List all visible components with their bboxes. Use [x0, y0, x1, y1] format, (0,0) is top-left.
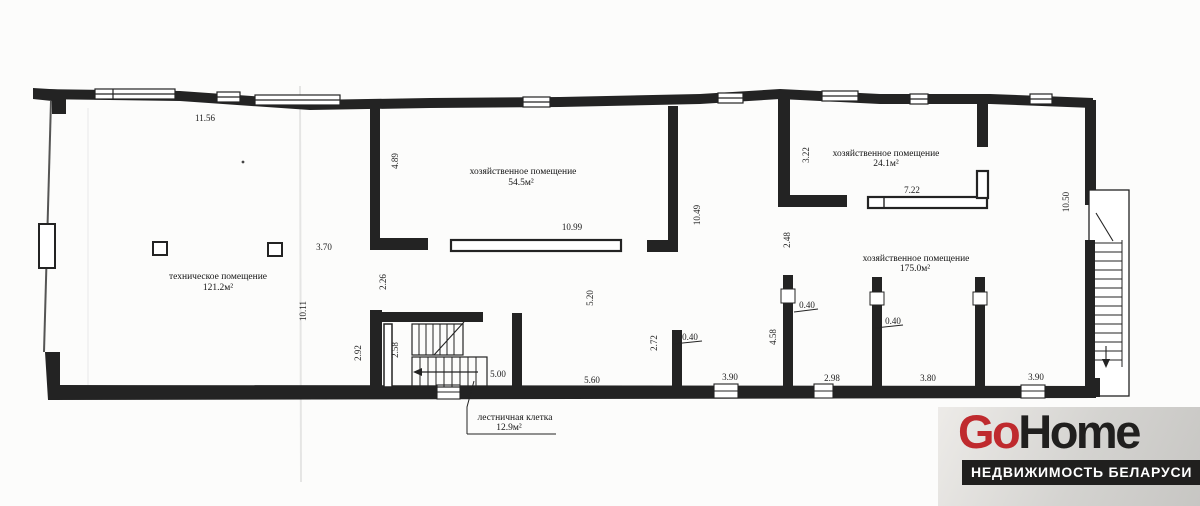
dim-label: 3.70	[316, 242, 332, 252]
room-label: лестничная клетка	[478, 413, 554, 423]
stair-direction-arrow	[413, 368, 422, 376]
dim-label: 3.80	[920, 373, 936, 383]
dim-label: 0.40	[799, 300, 815, 310]
dim-label: 10.49	[692, 204, 702, 225]
dim-label: 2.48	[782, 232, 792, 248]
room-area: 24.1м²	[873, 159, 899, 169]
columns	[153, 242, 282, 256]
room-label: хозяйственное помещение	[470, 166, 577, 177]
dim-label: 4.89	[390, 153, 400, 169]
room-area: 12.9м²	[496, 423, 522, 433]
scan-fold-lines	[88, 86, 301, 482]
dim-label: 0.40	[885, 316, 901, 326]
room-label: хозяйственное помещение	[833, 148, 940, 159]
brand-home: Home	[1018, 405, 1139, 458]
dimension-labels: 11.56 3.70 4.89 10.99 2.26 10.11 2.92 2.…	[195, 113, 1071, 385]
dim-label: 2.72	[649, 335, 659, 351]
dim-label: 3.90	[722, 372, 738, 382]
dim-label: 10.99	[562, 222, 583, 232]
dim-label: 7.22	[904, 185, 920, 195]
dim-label: 3.22	[801, 147, 811, 163]
dim-label: 2.58	[390, 342, 400, 358]
room-area: 54.5м²	[508, 178, 534, 188]
dim-label: 3.90	[1028, 372, 1044, 382]
left-wall	[39, 101, 55, 352]
dim-label: 0.40	[682, 332, 698, 342]
gohome-logo: GoHome	[958, 408, 1139, 455]
dim-label: 11.56	[195, 113, 215, 123]
dim-label: 10.50	[1061, 191, 1071, 212]
dim-label: 4.58	[768, 329, 778, 345]
external-staircase	[1085, 190, 1129, 397]
dim-label: 5.00	[490, 369, 506, 379]
scan-speck	[242, 161, 245, 164]
room-label: техническое помещение	[169, 272, 267, 282]
dim-label: 2.98	[824, 373, 840, 383]
room-area: 175.0м²	[900, 264, 930, 274]
room-label: хозяйственное помещение	[863, 253, 970, 264]
brand-go: Go	[958, 405, 1018, 458]
dim-label: 5.60	[584, 375, 600, 385]
central-staircase	[370, 310, 487, 390]
floorplan-scan: техническое помещение 121.2м² хозяйствен…	[0, 0, 1200, 506]
dim-label: 10.11	[298, 301, 308, 321]
room-area: 121.2м²	[203, 283, 233, 293]
dim-label: 5.20	[585, 290, 595, 306]
gohome-watermark: GoHome НЕДВИЖИМОСТЬ БЕЛАРУСИ	[938, 407, 1200, 506]
brand-tagline: НЕДВИЖИМОСТЬ БЕЛАРУСИ	[962, 460, 1200, 485]
dim-label: 2.92	[353, 345, 363, 361]
dim-label: 2.26	[378, 274, 388, 290]
